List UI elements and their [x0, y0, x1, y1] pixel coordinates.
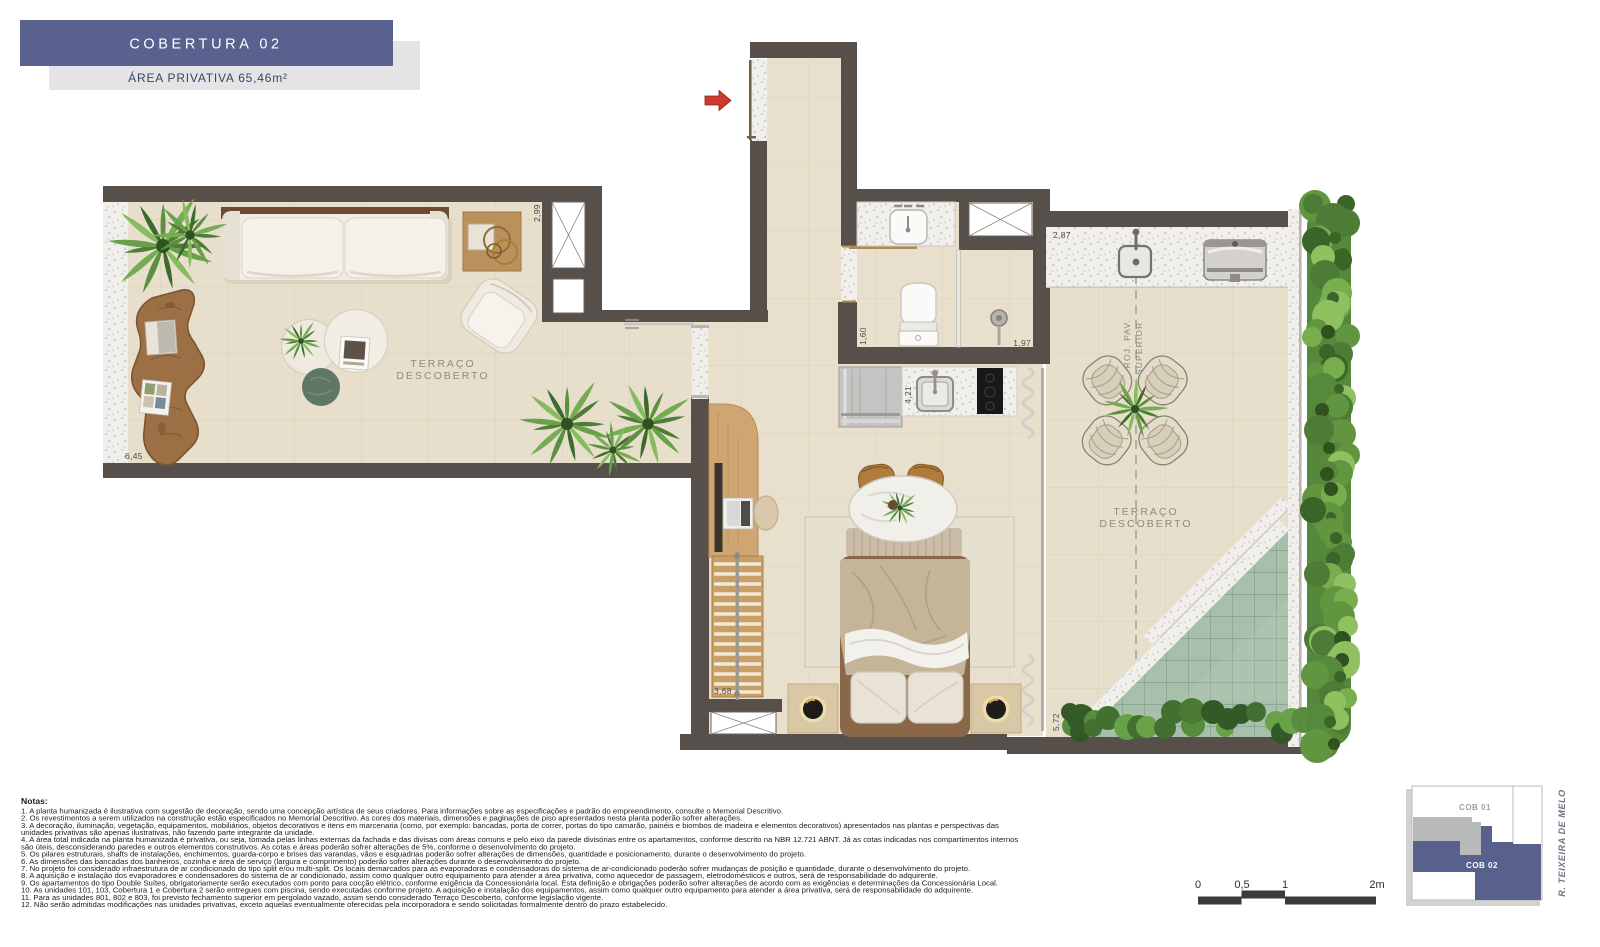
svg-text:6,45: 6,45: [125, 451, 143, 461]
svg-text:0,5: 0,5: [1234, 879, 1249, 891]
svg-text:2m: 2m: [1369, 879, 1384, 891]
svg-text:TERRAÇO: TERRAÇO: [410, 358, 475, 370]
svg-text:SUPERIOR: SUPERIOR: [1134, 322, 1144, 375]
svg-text:Notas:: Notas:: [21, 796, 48, 806]
svg-text:ÁREA PRIVATIVA 65,46m²: ÁREA PRIVATIVA 65,46m²: [128, 70, 288, 85]
svg-text:1: 1: [1282, 879, 1288, 891]
svg-text:COB 01: COB 01: [1459, 803, 1491, 812]
svg-text:5,72: 5,72: [1051, 713, 1061, 731]
svg-text:COB 02: COB 02: [1466, 861, 1498, 870]
svg-text:1,97: 1,97: [1013, 338, 1031, 348]
svg-text:3,68: 3,68: [714, 686, 732, 696]
svg-text:TERRAÇO: TERRAÇO: [1113, 506, 1178, 518]
svg-text:DESCOBERTO: DESCOBERTO: [396, 370, 489, 382]
svg-text:12. Não serão admitidas modifi: 12. Não serão admitidas modificações nas…: [21, 900, 667, 909]
svg-text:DESCOBERTO: DESCOBERTO: [1099, 518, 1192, 530]
svg-text:2,99: 2,99: [532, 204, 542, 222]
svg-text:4,21: 4,21: [903, 386, 913, 404]
svg-text:0: 0: [1195, 879, 1201, 891]
svg-text:R. TEIXEIRA DE MELO: R. TEIXEIRA DE MELO: [1557, 789, 1567, 897]
svg-text:COBERTURA 02: COBERTURA 02: [129, 37, 282, 53]
svg-text:2,87: 2,87: [1053, 230, 1071, 240]
svg-text:1,60: 1,60: [858, 327, 868, 345]
